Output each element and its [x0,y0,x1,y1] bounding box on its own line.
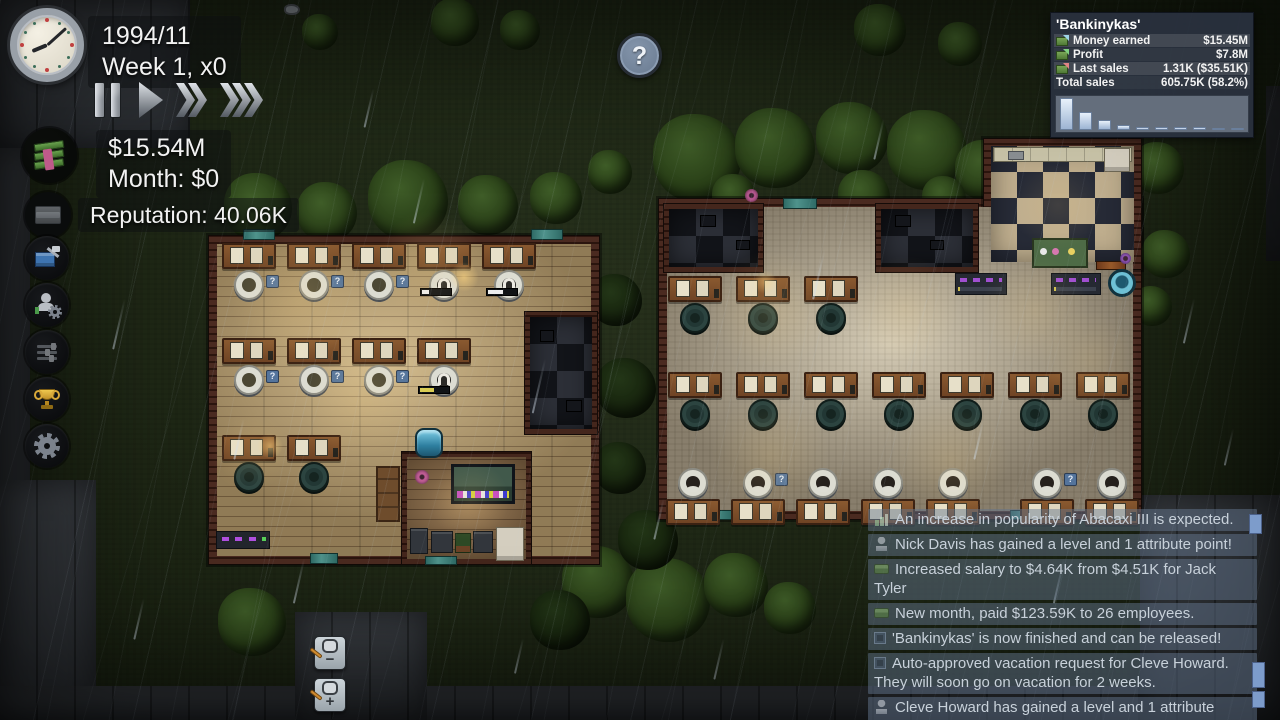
clock-tick [33,22,36,25]
desk[interactable] [736,372,790,398]
zoom-in-button[interactable]: + [314,678,346,712]
glass-door [425,556,457,565]
desk[interactable] [352,243,406,269]
date-display: 1994/11 Week 1, x0 [88,16,241,88]
notification-message[interactable]: 'Bankinykas' is now finished and can be … [868,628,1257,650]
office-chair[interactable] [234,365,264,395]
desk[interactable] [417,243,471,269]
stat-label: Total sales [1056,77,1161,89]
stat-value: $7.8M [1216,49,1248,61]
clock-tick [24,31,27,34]
desk[interactable] [736,276,790,302]
cabinet[interactable] [376,466,400,522]
flower-pot [415,470,429,484]
status-question-tag[interactable]: ? [266,370,279,383]
status-question-tag[interactable]: ? [775,473,788,486]
trophy-icon [34,386,60,412]
notification-message[interactable]: New month, paid $123.59K to 26 employees… [868,603,1257,625]
clock-tick [58,22,61,25]
desk[interactable] [731,499,785,525]
office-chair[interactable] [299,270,329,300]
sales-history-chart [1055,95,1249,133]
company-sign [1108,269,1136,297]
employee[interactable] [242,373,256,387]
trend-icon [874,512,889,526]
bathroom-fixture [736,240,750,250]
notification-log: An increase in popularity of Abacaxi III… [868,509,1257,720]
flower-pot [1120,253,1131,264]
zoom-controls: − + [314,636,346,712]
empty-chair[interactable] [680,303,710,333]
empty-chair[interactable] [234,462,264,492]
desk[interactable] [222,435,276,461]
employee[interactable] [372,373,386,387]
speed-controls [94,82,276,118]
level-icon [874,700,889,714]
employee[interactable] [307,373,321,387]
play-button[interactable] [139,82,163,118]
status-question-tag[interactable]: ? [396,275,409,288]
profit-icon [1056,49,1069,60]
product-title: 'Bankinykas' [1054,15,1250,33]
notification-message[interactable]: Nick Davis has gained a level and 1 attr… [868,534,1257,556]
sales-bar [1098,120,1111,130]
tree-bush [626,558,710,642]
sales-bar [1060,98,1073,130]
employee[interactable] [946,476,960,490]
employee[interactable] [816,476,830,490]
tree-bush [588,150,632,194]
office-chair[interactable] [1097,468,1127,498]
sales-bar [1212,128,1225,130]
notification-message[interactable]: Auto-approved vacation request for Cleve… [868,653,1257,694]
product-stats-rows: Money earned$15.45MProfit$7.8MLast sales… [1054,34,1250,89]
gear-icon [34,433,60,459]
notification-text: 'Bankinykas' is now finished and can be … [892,630,1221,647]
flower-pot [745,189,758,202]
office-chair[interactable] [299,365,329,395]
bathroom-fixture [895,215,911,227]
sales-bar [1079,112,1092,130]
product-stat-row: Last sales1.31K ($35.51K) [1054,62,1250,75]
media-console[interactable] [216,531,270,549]
plus-glyph: + [315,695,345,709]
notification-message[interactable]: An increase in popularity of Abacaxi III… [868,509,1257,531]
employee[interactable] [307,278,321,292]
level-icon [874,537,889,551]
sidebar-item-management[interactable] [25,330,69,374]
employee[interactable] [372,278,386,292]
tree-bush [704,553,768,617]
office-chair[interactable] [364,270,394,300]
employee[interactable] [242,278,256,292]
balance-text: $15.54M [108,133,219,164]
product-stat-row: Profit$7.8M [1054,48,1250,61]
product-stat-row: Money earned$15.45M [1054,34,1250,47]
product-stats-panel: 'Bankinykas' Money earned$15.45MProfit$7… [1050,12,1254,138]
notification-text: An increase in popularity of Abacaxi III… [895,511,1234,528]
empty-chair[interactable] [1020,399,1050,429]
last-sales-icon [1056,63,1069,74]
sidebar-item-settings[interactable] [25,424,69,468]
desk[interactable] [1076,372,1130,398]
clock-tick [33,65,36,68]
office-chair[interactable] [743,468,773,498]
empty-chair[interactable] [748,399,778,429]
desk[interactable] [668,372,722,398]
task-progress-bar [418,386,450,394]
employee[interactable] [881,476,895,490]
pause-button[interactable] [94,82,126,118]
rock [284,4,300,15]
help-button[interactable]: ? [617,33,662,78]
clock-tick [67,56,70,59]
tree-bush [938,22,982,66]
office-chair[interactable] [873,468,903,498]
office-chair[interactable] [234,270,264,300]
money-icon [874,564,889,574]
desk[interactable] [222,243,276,269]
tree-bush [500,10,540,50]
glass-door [531,229,563,240]
bathroom-fixture [700,215,716,227]
sales-bar [1117,125,1130,130]
money-icon [22,128,77,183]
empty-chair[interactable] [816,303,846,333]
desk[interactable] [804,276,858,302]
office-chair[interactable] [678,468,708,498]
tree-bush [1142,230,1190,278]
date-text: 1994/11 [102,21,227,52]
notification-text: Increased salary to $4.64K from $4.51K f… [874,561,1216,597]
empty-chair[interactable] [952,399,982,429]
notification-message[interactable]: Increased salary to $4.64K from $4.51K f… [868,559,1257,600]
clock-tick [70,43,74,47]
sales-bar [1155,127,1168,130]
tree-shadow [594,442,646,494]
notification-text: New month, paid $123.59K to 26 employees… [895,605,1194,622]
desk[interactable] [417,338,471,364]
desk[interactable] [666,499,720,525]
employee[interactable] [751,476,765,490]
empty-chair[interactable] [299,462,329,492]
stat-value: 605.75K (58.2%) [1161,77,1248,89]
person-gear-icon [34,292,60,318]
tree-bush [218,588,286,656]
reputation-icon [25,192,71,238]
tree-bush [431,0,479,46]
clock-tick [58,65,61,68]
kitchen-appliance[interactable] [473,531,493,553]
fish-tank[interactable] [415,428,443,458]
status-question-tag[interactable]: ? [331,275,344,288]
reputation-display: Reputation: 40.06K [78,198,299,232]
server-rack[interactable] [955,273,1007,295]
scrollbar-thumb[interactable] [1252,662,1265,688]
desk[interactable] [287,338,341,364]
kitchen-appliance[interactable] [410,528,428,554]
fridge[interactable] [496,527,524,561]
desk[interactable] [287,243,341,269]
sliders-icon [34,339,60,365]
clock-tick [45,18,49,22]
box-icon [874,657,886,669]
office-chair[interactable] [364,365,394,395]
box-icon [874,632,886,644]
clock-tick [67,31,70,34]
status-question-tag[interactable]: ? [1064,473,1077,486]
stone-path [0,480,96,720]
clock-tick [20,43,24,47]
glass-door [310,553,338,564]
notification-message[interactable]: Cleve Howard has gained a level and 1 at… [868,697,1257,720]
stat-label: Profit [1073,49,1216,61]
desk[interactable] [482,243,536,269]
money-icon [874,608,889,618]
desk[interactable] [1008,372,1062,398]
game-viewport: ???????? 1994/11 Week 1, x0 $15.54M Mont… [0,0,1280,720]
clock [10,8,84,82]
notification-text: Cleve Howard has gained a level and 1 at… [874,699,1214,720]
sidebar-item-construction[interactable] [25,236,69,280]
sidebar-item-achievements[interactable] [25,377,69,421]
pause-icon [94,82,105,118]
notification-text: Auto-approved vacation request for Cleve… [874,655,1229,691]
tree-bush [458,175,518,235]
sales-bar [1231,128,1244,130]
scrollbar-thumb[interactable] [1252,691,1265,708]
employee[interactable] [686,476,700,490]
server-rack[interactable] [1051,273,1101,295]
pause-icon [110,82,121,118]
empty-chair[interactable] [1088,399,1118,429]
bathroom-fixture [566,400,582,412]
tree-bush [735,108,815,188]
desk[interactable] [352,338,406,364]
empty-chair[interactable] [748,303,778,333]
tree-bush [368,160,448,240]
scrollbar-thumb[interactable] [1249,514,1262,534]
status-question-tag[interactable]: ? [331,370,344,383]
glass-door [783,198,817,209]
desk[interactable] [287,435,341,461]
bathroom-fixture [540,330,554,342]
desk[interactable] [668,276,722,302]
bathroom-fixture [930,240,944,250]
employee[interactable] [1105,476,1119,490]
product-stat-row: Total sales605.75K (58.2%) [1054,76,1250,89]
zoom-out-button[interactable]: − [314,636,346,670]
task-progress-bar [420,288,452,296]
tree-bush [530,172,582,224]
clock-tick [45,68,49,72]
desk[interactable] [804,372,858,398]
employee[interactable] [437,373,451,387]
tree-bush [816,102,888,174]
status-question-tag[interactable]: ? [396,370,409,383]
empty-chair[interactable] [884,399,914,429]
fast-forward-button[interactable] [176,83,207,117]
sales-bar [1174,127,1187,130]
play-icon [139,82,163,118]
desk[interactable] [872,372,926,398]
fridge[interactable] [1104,148,1130,172]
tree-bush [297,182,357,242]
stat-label: Last sales [1073,63,1163,75]
status-question-tag[interactable]: ? [266,275,279,288]
office-chair[interactable] [938,468,968,498]
tree-shadow [596,358,656,418]
money-display: $15.54M Month: $0 [96,130,231,198]
food-table[interactable] [1032,238,1088,268]
sales-bar [1136,127,1149,130]
stat-value: $15.45M [1203,35,1248,47]
empty-chair[interactable] [680,399,710,429]
desk[interactable] [796,499,850,525]
notification-text: Nick Davis has gained a level and 1 attr… [895,536,1232,553]
fastest-forward-button[interactable] [220,83,263,117]
stat-label: Money earned [1073,35,1203,47]
sidebar-item-staff[interactable] [25,283,69,327]
desk[interactable] [222,338,276,364]
week-speed-text: Week 1, x0 [102,52,227,83]
blueprint-hammer-icon [34,245,60,271]
stone-path [1266,86,1280,261]
office-chair[interactable] [1032,468,1062,498]
tv-screen[interactable] [451,464,515,504]
kitchen-appliance[interactable] [431,531,453,553]
tree-bush [854,4,906,56]
office-chair[interactable] [808,468,838,498]
desk[interactable] [940,372,994,398]
money-earned-icon [1056,35,1069,46]
employee[interactable] [1040,476,1054,490]
month-total-text: Month: $0 [108,164,219,195]
tree-bush [764,582,816,634]
stat-value: 1.31K ($35.51K) [1163,63,1248,75]
reputation-text: Reputation: 40.06K [90,201,287,229]
potted-plant[interactable] [455,533,471,553]
clock-tick [24,56,27,59]
minus-glyph: − [315,653,345,667]
tree-bush [302,14,338,50]
empty-chair[interactable] [816,399,846,429]
task-progress-bar [486,288,518,296]
sales-bar [1193,127,1206,130]
tree-shadow [530,590,590,650]
